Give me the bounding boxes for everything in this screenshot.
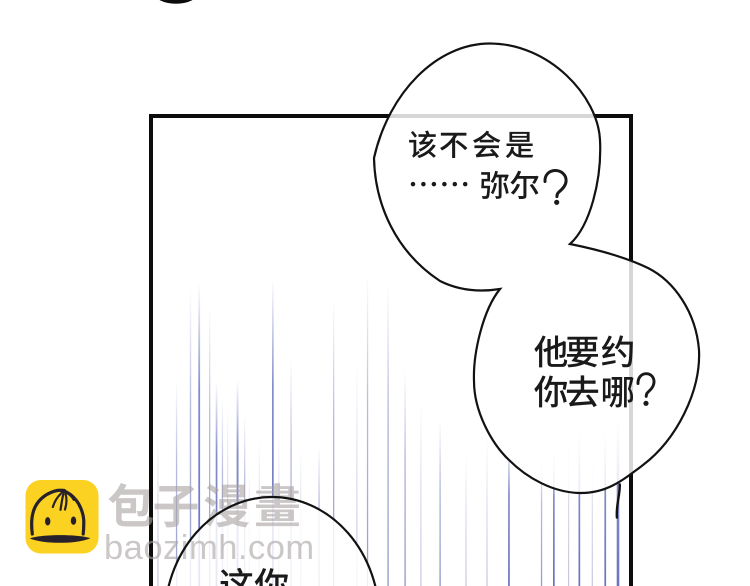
svg-text:baozimh.com: baozimh.com [104, 529, 315, 567]
